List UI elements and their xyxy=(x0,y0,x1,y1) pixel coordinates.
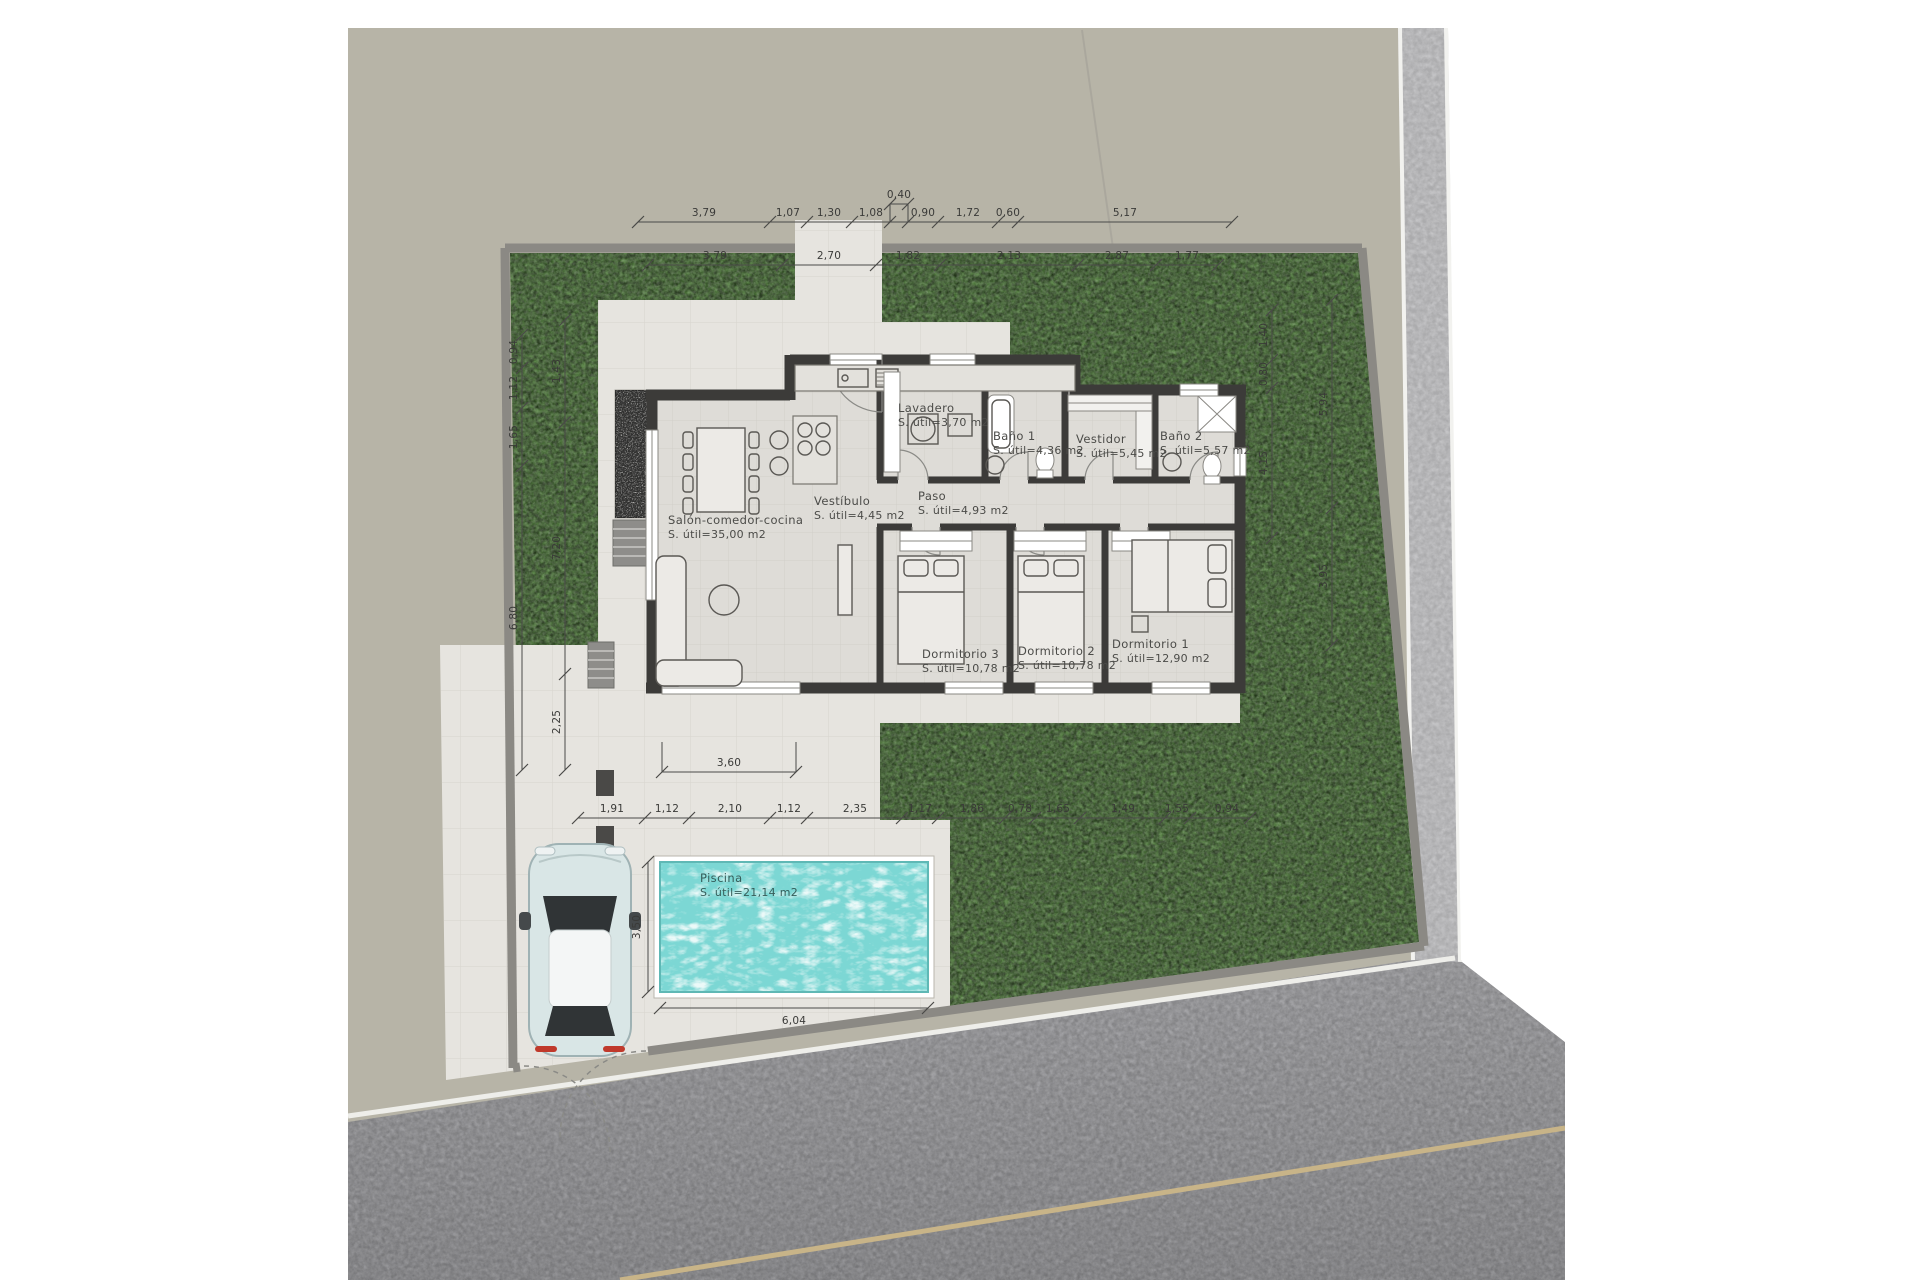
dim-label: 1,65 xyxy=(1046,803,1070,815)
taillight xyxy=(535,1046,557,1052)
dim-label: 0,94 xyxy=(508,340,520,364)
dim-label: 2,87 xyxy=(1105,250,1129,262)
svg-text:S. útil=4,36 m2: S. útil=4,36 m2 xyxy=(993,444,1084,457)
svg-text:Vestíbulo: Vestíbulo xyxy=(814,494,870,508)
pool xyxy=(654,856,934,998)
svg-text:S. útil=4,45 m2: S. útil=4,45 m2 xyxy=(814,509,905,522)
bedroom-wardrobes xyxy=(900,531,1170,551)
svg-text:S. útil=35,00 m2: S. útil=35,00 m2 xyxy=(668,528,766,541)
dim-label: 1,86 xyxy=(960,803,984,815)
dim-label: 2,25 xyxy=(551,710,563,734)
svg-text:Lavadero: Lavadero xyxy=(898,401,954,415)
dim-label: 0,78 xyxy=(1008,803,1032,815)
headlight xyxy=(535,847,555,855)
dim-label: 0,90 xyxy=(911,207,935,219)
windshield xyxy=(543,896,617,934)
svg-text:Dormitorio 2: Dormitorio 2 xyxy=(1018,644,1095,658)
dim-label: 1,12 xyxy=(777,803,801,815)
dim-label: 5,94 xyxy=(1318,392,1330,416)
dim-label: 2,13 xyxy=(997,250,1021,262)
tv-unit xyxy=(838,545,852,615)
window-dorm1 xyxy=(1152,682,1210,694)
headlight xyxy=(605,847,625,855)
svg-text:S. útil=10,78 m2: S. útil=10,78 m2 xyxy=(1018,659,1116,672)
dim-label: 2,70 xyxy=(817,250,841,262)
svg-text:S. útil=12,90 m2: S. útil=12,90 m2 xyxy=(1112,652,1210,665)
svg-text:S. útil=10,78 m2: S. útil=10,78 m2 xyxy=(922,662,1020,675)
dim-label: 3,60 xyxy=(717,757,741,769)
dim-label: 6,80 xyxy=(508,606,520,630)
dim-label: 3,50 xyxy=(631,915,643,939)
dim-label: 1,43 xyxy=(551,359,563,383)
dim-label: 2,35 xyxy=(843,803,867,815)
svg-text:S. útil=21,14 m2: S. útil=21,14 m2 xyxy=(700,886,798,899)
dim-label: 1,91 xyxy=(600,803,624,815)
dim-label: 1,08 xyxy=(859,207,883,219)
taillight xyxy=(603,1046,625,1052)
site-plan-drawing: 3,79 1,07 1,30 1,08 0,40 0,90 1,72 0,60 … xyxy=(0,0,1920,1280)
dim-label: 1,65 xyxy=(508,425,520,449)
dim-label: 0,40 xyxy=(887,189,911,201)
kitchen-counter xyxy=(795,365,1075,391)
side-mirror xyxy=(519,912,531,930)
window-bano2-top xyxy=(1180,384,1218,396)
svg-text:Dormitorio 3: Dormitorio 3 xyxy=(922,647,999,661)
svg-text:S. útil=3,70 m2: S. útil=3,70 m2 xyxy=(898,416,989,429)
svg-text:Paso: Paso xyxy=(918,489,946,503)
svg-text:S. útil=5,57 m2: S. útil=5,57 m2 xyxy=(1160,444,1251,457)
svg-text:Salón-comedor-cocina: Salón-comedor-cocina xyxy=(668,513,803,527)
dim-label: 0,60 xyxy=(996,207,1020,219)
walkway xyxy=(795,220,882,362)
dim-label: 0,94 xyxy=(1215,803,1239,815)
dim-label: 2,10 xyxy=(718,803,742,815)
dim-label: 1,17 xyxy=(908,803,932,815)
svg-text:Baño 2: Baño 2 xyxy=(1160,429,1203,443)
window-dorm2 xyxy=(1035,682,1093,694)
dim-label: 1,77 xyxy=(1175,250,1199,262)
dim-label: 1,72 xyxy=(956,207,980,219)
dim-label: 7,20 xyxy=(551,536,563,560)
dim-label: 6,04 xyxy=(782,1015,806,1027)
svg-text:Piscina: Piscina xyxy=(700,871,743,885)
dim-label: 1,55 xyxy=(1165,803,1189,815)
dim-label: 3,79 xyxy=(703,250,727,262)
window-kitchen-top xyxy=(830,354,882,366)
dim-label: 5,17 xyxy=(1113,207,1137,219)
dim-label: 1,30 xyxy=(817,207,841,219)
dim-label: 0,80 xyxy=(1258,362,1270,386)
dim-label: 1,40 xyxy=(1258,323,1270,347)
svg-text:S. útil=5,45 m2: S. útil=5,45 m2 xyxy=(1076,447,1167,460)
car xyxy=(519,844,641,1056)
dim-label: 3,95 xyxy=(1318,564,1330,588)
svg-text:Dormitorio 1: Dormitorio 1 xyxy=(1112,637,1189,651)
dim-label: 1,49 xyxy=(1111,803,1135,815)
dim-label: 1,07 xyxy=(776,207,800,219)
svg-text:Baño 1: Baño 1 xyxy=(993,429,1036,443)
dim-label: 4,15 xyxy=(1258,451,1270,475)
dim-label: 3,79 xyxy=(692,207,716,219)
car-roof xyxy=(549,930,611,1008)
svg-text:Vestidor: Vestidor xyxy=(1076,432,1126,446)
rear-window xyxy=(545,1006,615,1036)
dim-label: 1,12 xyxy=(655,803,679,815)
site-plan-canvas: 3,79 1,07 1,30 1,08 0,40 0,90 1,72 0,60 … xyxy=(0,0,1920,1280)
window-lavadero-top xyxy=(930,354,975,366)
window-dorm3 xyxy=(945,682,1003,694)
svg-text:S. útil=4,93 m2: S. útil=4,93 m2 xyxy=(918,504,1009,517)
dim-label: 1,12 xyxy=(508,376,520,400)
dim-label: 1,82 xyxy=(896,250,920,262)
